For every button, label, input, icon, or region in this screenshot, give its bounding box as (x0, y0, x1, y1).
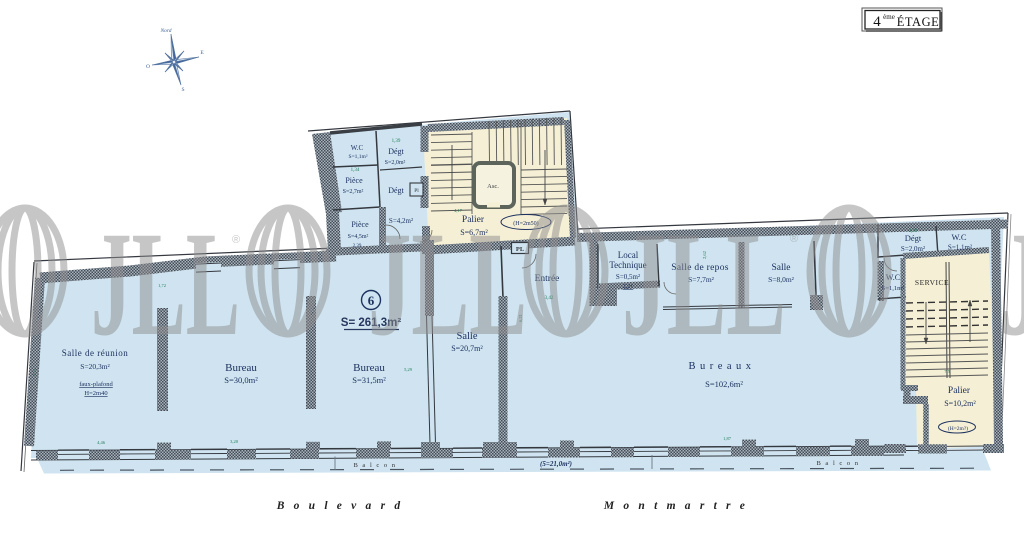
svg-text:O: O (146, 64, 150, 70)
svg-text:JLL: JLL (368, 201, 527, 367)
svg-text:1,39: 1,39 (392, 139, 401, 144)
svg-text:W.C: W.C (951, 232, 966, 242)
svg-text:M o n t m a r t r e: M o n t m a r t r e (603, 500, 748, 512)
svg-text:4: 4 (873, 14, 881, 30)
svg-text:(5=21,0m²): (5=21,0m²) (540, 460, 572, 468)
svg-text:Dégt: Dégt (388, 147, 404, 156)
svg-text:S=31,5m²: S=31,5m² (352, 375, 386, 385)
svg-text:S=1,1m²: S=1,1m² (349, 154, 368, 160)
svg-text:JLL: JLL (622, 201, 786, 367)
svg-text:Dégt: Dégt (905, 233, 922, 243)
svg-text:S=10,2m²: S=10,2m² (944, 399, 976, 408)
svg-text:Pièce: Pièce (351, 220, 369, 229)
svg-text:S: S (181, 87, 184, 93)
svg-text:Nord: Nord (159, 28, 171, 34)
svg-text:2,39: 2,39 (353, 244, 362, 249)
svg-text:S=30,0m²: S=30,0m² (224, 375, 258, 385)
svg-text:ème: ème (883, 13, 895, 21)
svg-text:JLL: JLL (91, 201, 240, 367)
svg-text:Pièce: Pièce (345, 176, 363, 185)
svg-text:S=2,0m²: S=2,0m² (385, 160, 406, 166)
svg-text:B o u l e v a r d: B o u l e v a r d (276, 500, 404, 512)
svg-text:W.C: W.C (351, 144, 364, 152)
svg-text:®: ® (530, 233, 538, 245)
svg-text:S=102,6m²: S=102,6m² (705, 379, 743, 389)
svg-text:S=4,5m²: S=4,5m² (348, 234, 369, 240)
svg-text:®: ® (232, 234, 240, 246)
svg-text:ÉTAGE: ÉTAGE (897, 15, 939, 29)
svg-text:Palier: Palier (948, 386, 971, 396)
svg-text:B a l c o n: B a l c o n (353, 462, 396, 469)
svg-text:Dégt: Dégt (388, 186, 404, 195)
svg-text:S=1,1m²: S=1,1m² (948, 244, 972, 252)
svg-text:(H=2m?): (H=2m?) (948, 425, 968, 432)
svg-text:1,34: 1,34 (351, 168, 360, 173)
svg-text:JLL: JLL (1000, 201, 1024, 367)
svg-text:B a l c o n: B a l c o n (816, 460, 859, 467)
svg-text:SERVICE: SERVICE (915, 278, 949, 287)
svg-text:H=2m40: H=2m40 (84, 390, 107, 397)
svg-text:faux-plafond: faux-plafond (79, 381, 113, 388)
svg-text:S=2,0m²: S=2,0m² (901, 245, 925, 253)
svg-text:Asc.: Asc. (487, 183, 499, 190)
svg-text:®: ® (790, 233, 798, 245)
svg-text:2,30: 2,30 (909, 229, 918, 234)
svg-text:Pl: Pl (414, 188, 419, 194)
svg-text:S=2,7m²: S=2,7m² (343, 189, 364, 195)
